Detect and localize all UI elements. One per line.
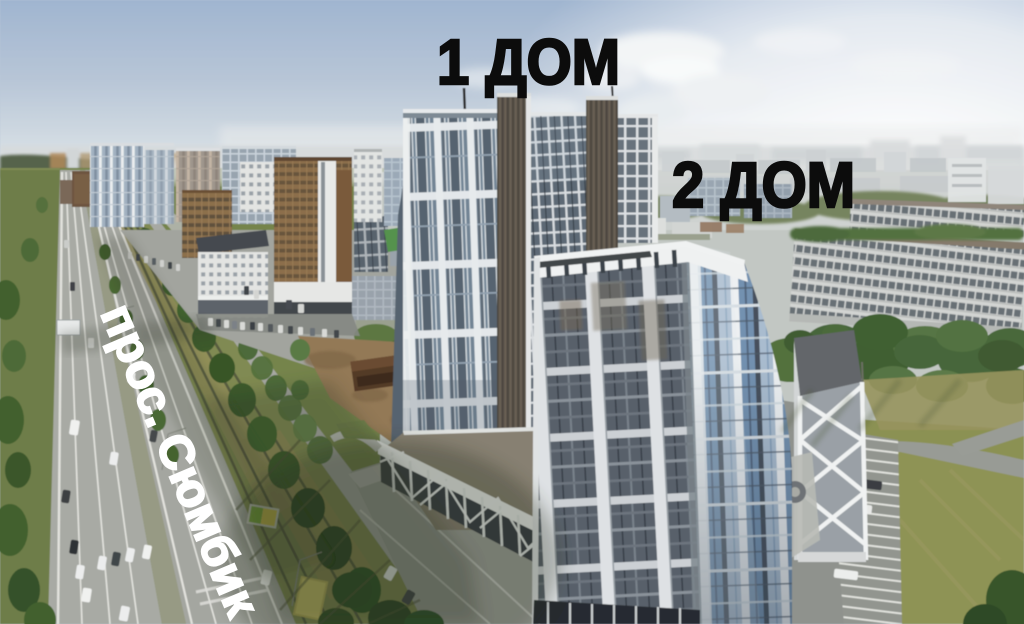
svg-text:2 ДОМ: 2 ДОМ: [672, 149, 855, 221]
svg-text:1 ДОМ: 1 ДОМ: [437, 26, 620, 98]
